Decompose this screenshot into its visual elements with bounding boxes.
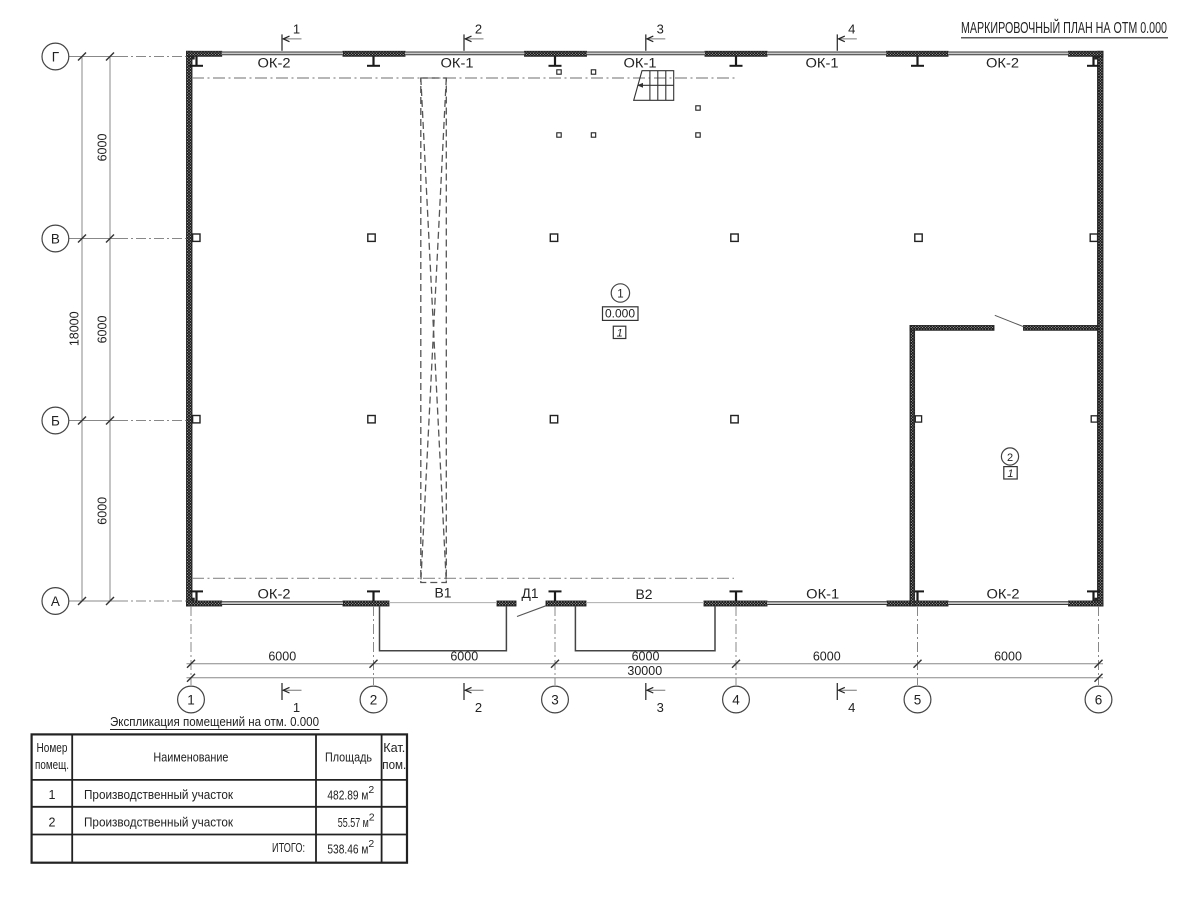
svg-text:4: 4 xyxy=(848,22,855,37)
svg-text:6000: 6000 xyxy=(632,650,660,664)
svg-text:6000: 6000 xyxy=(96,134,110,162)
svg-text:ОК-2: ОК-2 xyxy=(258,587,291,602)
svg-text:3: 3 xyxy=(551,692,559,707)
svg-text:ОК-1: ОК-1 xyxy=(806,55,839,70)
svg-text:2: 2 xyxy=(49,816,56,830)
svg-text:Номер: Номер xyxy=(37,741,68,755)
svg-text:1: 1 xyxy=(49,788,56,802)
svg-text:3: 3 xyxy=(657,700,664,715)
svg-text:Б: Б xyxy=(51,413,60,428)
svg-text:30000: 30000 xyxy=(627,664,662,678)
svg-text:6000: 6000 xyxy=(96,316,110,344)
svg-text:1: 1 xyxy=(617,289,623,301)
svg-text:4: 4 xyxy=(732,692,740,707)
svg-text:МАРКИРОВОЧНЫЙ ПЛАН НА ОТМ 0.00: МАРКИРОВОЧНЫЙ ПЛАН НА ОТМ 0.000 xyxy=(961,19,1167,37)
svg-text:ОК-1: ОК-1 xyxy=(806,587,839,602)
svg-text:ОК-2: ОК-2 xyxy=(987,587,1020,602)
svg-text:Кат.: Кат. xyxy=(383,741,405,755)
svg-text:ОК-1: ОК-1 xyxy=(441,55,474,70)
svg-text:помещ.: помещ. xyxy=(35,758,69,772)
svg-text:6: 6 xyxy=(1095,692,1103,707)
svg-text:18000: 18000 xyxy=(68,311,82,346)
svg-text:6000: 6000 xyxy=(268,650,296,664)
svg-text:1: 1 xyxy=(1007,468,1013,480)
svg-text:Производственный участок: Производственный участок xyxy=(84,816,233,830)
svg-text:1: 1 xyxy=(187,692,195,707)
svg-text:4: 4 xyxy=(848,700,855,715)
svg-text:Площадь: Площадь xyxy=(325,751,372,765)
svg-text:ОК-2: ОК-2 xyxy=(986,55,1019,70)
svg-text:6000: 6000 xyxy=(994,650,1022,664)
svg-text:1: 1 xyxy=(617,328,623,340)
svg-text:6000: 6000 xyxy=(96,497,110,525)
svg-text:Д1: Д1 xyxy=(522,586,539,601)
svg-text:В2: В2 xyxy=(636,587,653,602)
svg-text:1: 1 xyxy=(293,22,300,37)
svg-text:ОК-2: ОК-2 xyxy=(258,55,291,70)
svg-text:Г: Г xyxy=(52,49,60,64)
svg-text:пом.: пом. xyxy=(382,758,406,772)
svg-text:Наименование: Наименование xyxy=(153,751,228,765)
svg-text:6000: 6000 xyxy=(813,650,841,664)
svg-text:В: В xyxy=(51,231,60,246)
svg-text:1: 1 xyxy=(293,700,300,715)
svg-text:В1: В1 xyxy=(435,585,452,600)
svg-text:2: 2 xyxy=(475,22,482,37)
svg-text:ОК-1: ОК-1 xyxy=(624,55,657,70)
svg-text:2: 2 xyxy=(1007,452,1013,464)
svg-text:Производственный участок: Производственный участок xyxy=(84,788,233,802)
svg-text:ИТОГО:: ИТОГО: xyxy=(272,841,305,855)
svg-text:А: А xyxy=(51,594,60,609)
svg-text:6000: 6000 xyxy=(450,650,478,664)
svg-text:0.000: 0.000 xyxy=(605,306,635,320)
svg-text:2: 2 xyxy=(370,692,378,707)
svg-text:3: 3 xyxy=(657,22,664,37)
svg-text:Экспликация помещений на отм.: Экспликация помещений на отм. 0.000 xyxy=(110,714,319,729)
svg-text:2: 2 xyxy=(475,700,482,715)
svg-text:5: 5 xyxy=(914,692,922,707)
